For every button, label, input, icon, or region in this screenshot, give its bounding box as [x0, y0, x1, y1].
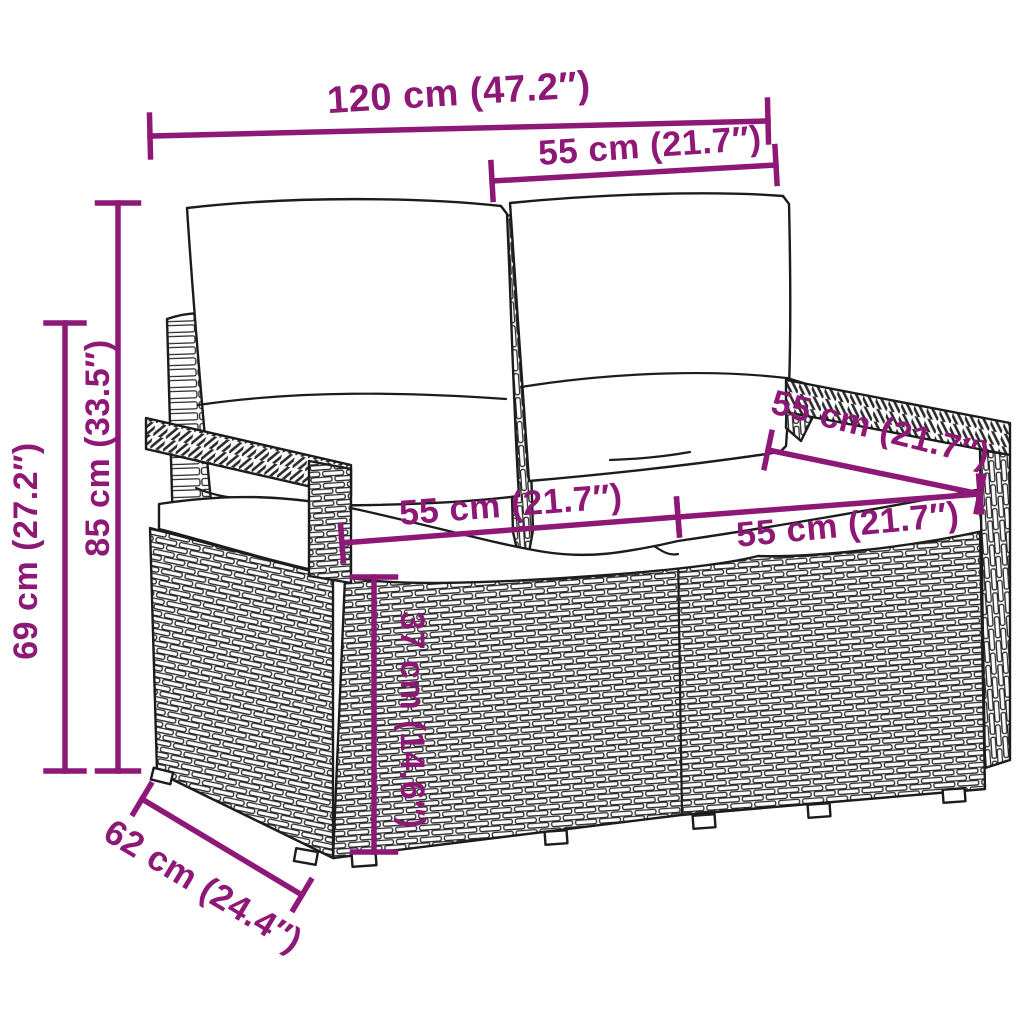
dimension-diagram-canvas: 120 cm (47.2″)55 cm (21.7″)85 cm (33.5″)…	[0, 0, 1024, 1024]
dimension-label-overall-height: 85 cm (33.5″)	[79, 339, 117, 556]
dimension-tick-seat-width-right-start	[677, 499, 680, 535]
dimension-line-backrest-width-right	[492, 165, 776, 181]
dimension-backrest-width-right: 55 cm (21.7″)	[491, 119, 777, 200]
dimension-tick-overall-depth-start	[133, 784, 150, 813]
dimension-tick-seat-width-left-start	[341, 525, 344, 561]
dimension-armrest-height: 69 cm (27.2″)	[7, 323, 84, 771]
dimension-tick-overall-depth-end	[293, 880, 310, 909]
product-dimension-diagram: 120 cm (47.2″)55 cm (21.7″)85 cm (33.5″)…	[0, 0, 1024, 1024]
sofa-base-left-side	[150, 528, 333, 858]
dimension-label-seat-base-height: 37 cm (14.6″)	[393, 611, 431, 828]
dimension-label-armrest-height: 69 cm (27.2″)	[7, 442, 45, 659]
dimension-label-overall-width: 120 cm (47.2″)	[326, 64, 592, 122]
dimension-tick-backrest-width-right-end	[775, 147, 777, 184]
dimension-tick-backrest-width-right-start	[491, 163, 493, 200]
dimension-tick-overall-width-start	[149, 115, 150, 157]
dimension-tick-overall-width-end	[767, 100, 768, 142]
back-cushion-right	[510, 193, 790, 481]
dimension-label-seat-depth-top: 55 cm (21.7″)	[767, 383, 993, 475]
dimension-overall-height: 85 cm (33.5″)	[79, 203, 139, 771]
